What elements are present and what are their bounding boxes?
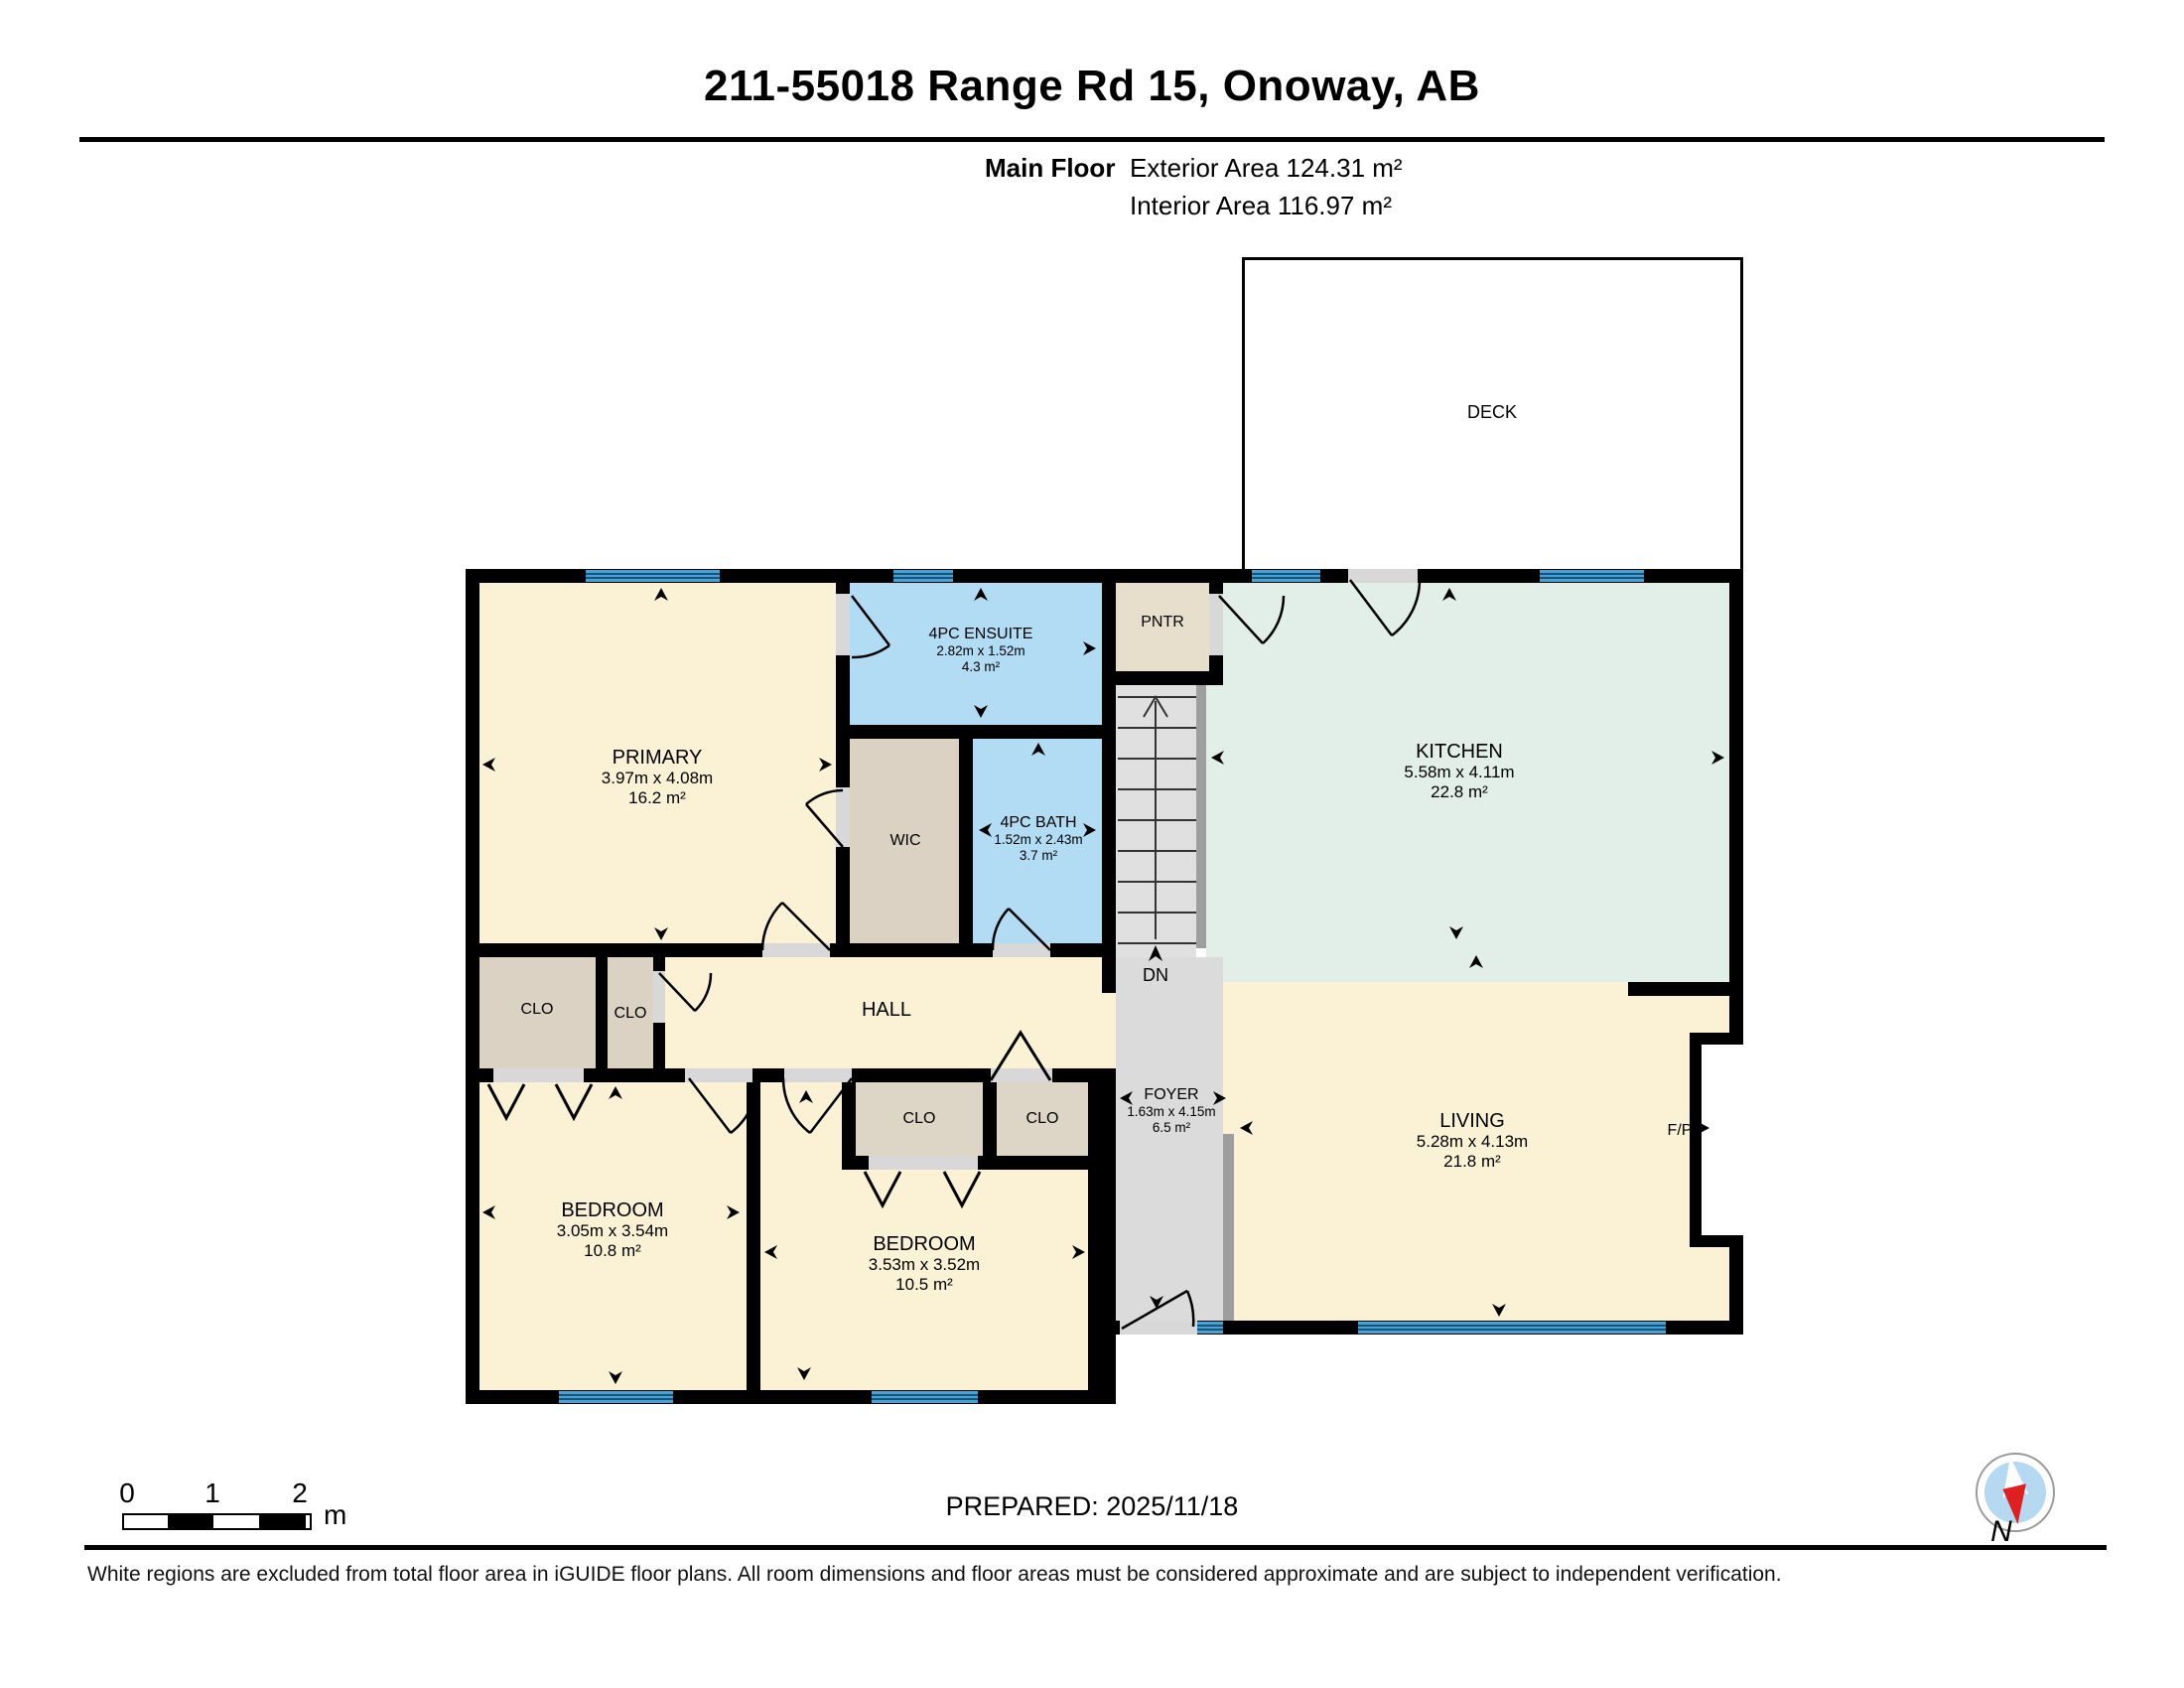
living-label: LIVING 5.28m x 4.13m 21.8 m² (1417, 1110, 1528, 1172)
disclaimer-text: White regions are excluded from total fl… (87, 1563, 2122, 1587)
bedroom2-label: BEDROOM 3.53m x 3.52m 10.5 m² (869, 1233, 980, 1295)
pantry-label: PNTR (1141, 614, 1184, 632)
stairs-dn-label: DN (1143, 965, 1168, 986)
foyer-label: FOYER 1.63m x 4.15m 6.5 m² (1127, 1086, 1215, 1136)
door-arcs (659, 580, 1420, 1329)
compass-north-label: N (1990, 1515, 2012, 1549)
ensuite-label: 4PC ENSUITE 2.82m x 1.52m 4.3 m² (929, 626, 1033, 675)
pointer-arrows (482, 588, 1724, 1384)
bifold-chevrons (488, 1033, 1050, 1205)
stair-steps (1118, 697, 1196, 943)
fireplace-label: F/P (1668, 1122, 1693, 1140)
closet2-label: CLO (614, 1005, 647, 1023)
closet1-label: CLO (521, 1001, 554, 1019)
bedroom1-label: BEDROOM 3.05m x 3.54m 10.8 m² (557, 1199, 668, 1261)
primary-label: PRIMARY 3.97m x 4.08m 16.2 m² (602, 747, 713, 808)
wic-label: WIC (889, 832, 920, 850)
bath-label: 4PC BATH 1.52m x 2.43m 3.7 m² (994, 814, 1082, 864)
prepared-date: PREPARED: 2025/11/18 (0, 1491, 2184, 1522)
kitchen-label: KITCHEN 5.58m x 4.11m 22.8 m² (1404, 741, 1514, 802)
closet3-label: CLO (903, 1110, 936, 1128)
hall-label: HALL (862, 999, 911, 1021)
floor-plan-page: 211-55018 Range Rd 15, Onoway, AB Main F… (0, 0, 2184, 1688)
plan-linework (0, 0, 2184, 1688)
footer-divider (84, 1545, 2107, 1550)
closet4-label: CLO (1026, 1110, 1059, 1128)
